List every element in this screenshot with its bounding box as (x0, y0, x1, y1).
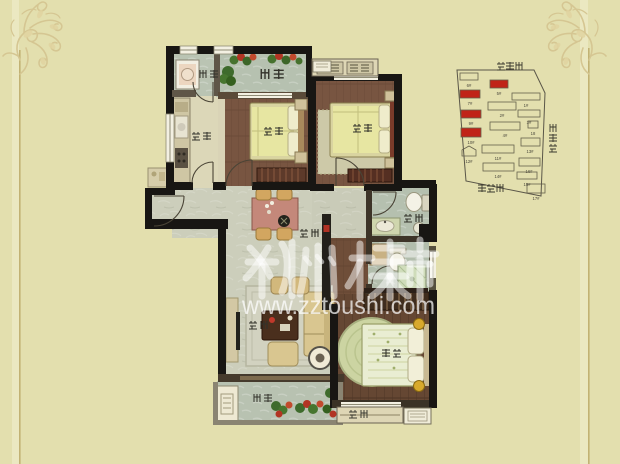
svg-text:4#: 4# (503, 133, 508, 138)
svg-text:12#: 12# (466, 159, 474, 164)
svg-text:18: 18 (531, 131, 536, 136)
svg-text:6#: 6# (467, 83, 472, 88)
svg-text:2#: 2# (500, 113, 505, 118)
svg-text:5#: 5# (497, 91, 502, 96)
svg-text:14#: 14# (495, 174, 503, 179)
svg-text:11#: 11# (495, 156, 502, 161)
svg-text:1#: 1# (524, 103, 529, 108)
svg-text:9#: 9# (469, 121, 474, 126)
svg-text:16#: 16# (526, 169, 534, 174)
svg-text:10#: 10# (468, 140, 476, 145)
svg-text:13#: 13# (527, 149, 535, 154)
svg-text:17#: 17# (533, 196, 541, 201)
svg-text:www.zztoushi.com: www.zztoushi.com (241, 292, 435, 320)
svg-text:7#: 7# (468, 101, 473, 106)
